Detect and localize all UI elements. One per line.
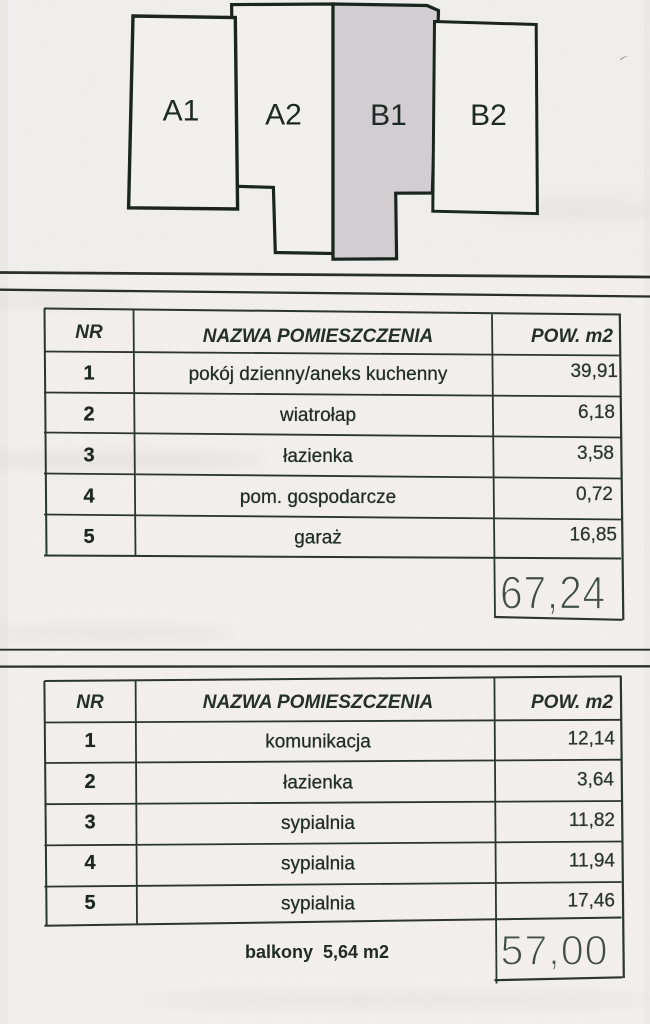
svg-text:5: 5: [83, 526, 94, 548]
svg-text:A2: A2: [265, 99, 302, 132]
svg-text:NR: NR: [75, 322, 103, 343]
svg-text:3,64: 3,64: [577, 770, 614, 791]
svg-text:57,00: 57,00: [501, 927, 609, 974]
svg-text:11,82: 11,82: [569, 810, 615, 831]
svg-text:6,18: 6,18: [578, 402, 615, 423]
svg-text:11,94: 11,94: [569, 851, 616, 872]
svg-text:pom. gospodarcze: pom. gospodarcze: [240, 487, 396, 508]
svg-text:NR: NR: [76, 692, 104, 713]
svg-text:5: 5: [84, 892, 95, 914]
svg-text:B1: B1: [370, 99, 407, 132]
svg-text:4: 4: [83, 486, 95, 508]
svg-text:wiatrołap: wiatrołap: [279, 405, 356, 426]
svg-text:0,72: 0,72: [576, 484, 613, 505]
svg-text:B2: B2: [470, 99, 507, 132]
svg-text:POW. m2: POW. m2: [531, 692, 613, 713]
svg-text:A1: A1: [163, 95, 200, 128]
svg-text:1: 1: [84, 730, 95, 752]
svg-text:sypialnia: sypialnia: [281, 854, 355, 875]
svg-text:sypialnia: sypialnia: [281, 894, 355, 915]
svg-text:2: 2: [84, 771, 95, 793]
svg-text:POW. m2: POW. m2: [531, 326, 613, 347]
svg-text:sypialnia: sypialnia: [281, 813, 355, 834]
svg-text:3: 3: [83, 445, 94, 467]
svg-text:2: 2: [83, 404, 94, 426]
svg-text:komunikacja: komunikacja: [265, 732, 371, 753]
svg-text:łazienka: łazienka: [283, 773, 353, 794]
svg-text:pokój dzienny/aneks kuchenny: pokój dzienny/aneks kuchenny: [189, 364, 448, 385]
svg-text:balkony 5,64 m2: balkony 5,64 m2: [245, 942, 389, 962]
svg-text:3: 3: [84, 812, 95, 834]
svg-text:39,91: 39,91: [570, 361, 618, 382]
svg-text:NAZWA POMIESZCZENIA: NAZWA POMIESZCZENIA: [203, 326, 433, 347]
svg-text:4: 4: [84, 852, 96, 874]
svg-text:garaż: garaż: [294, 528, 342, 549]
svg-text:NAZWA POMIESZCZENIA: NAZWA POMIESZCZENIA: [203, 692, 433, 713]
svg-text:17,46: 17,46: [567, 891, 615, 912]
svg-text:67,24: 67,24: [500, 567, 606, 619]
svg-text:łazienka: łazienka: [283, 446, 353, 467]
svg-text:1: 1: [83, 363, 94, 385]
svg-text:3,58: 3,58: [577, 443, 614, 464]
svg-text:12,14: 12,14: [567, 729, 615, 750]
svg-text:16,85: 16,85: [569, 525, 617, 546]
